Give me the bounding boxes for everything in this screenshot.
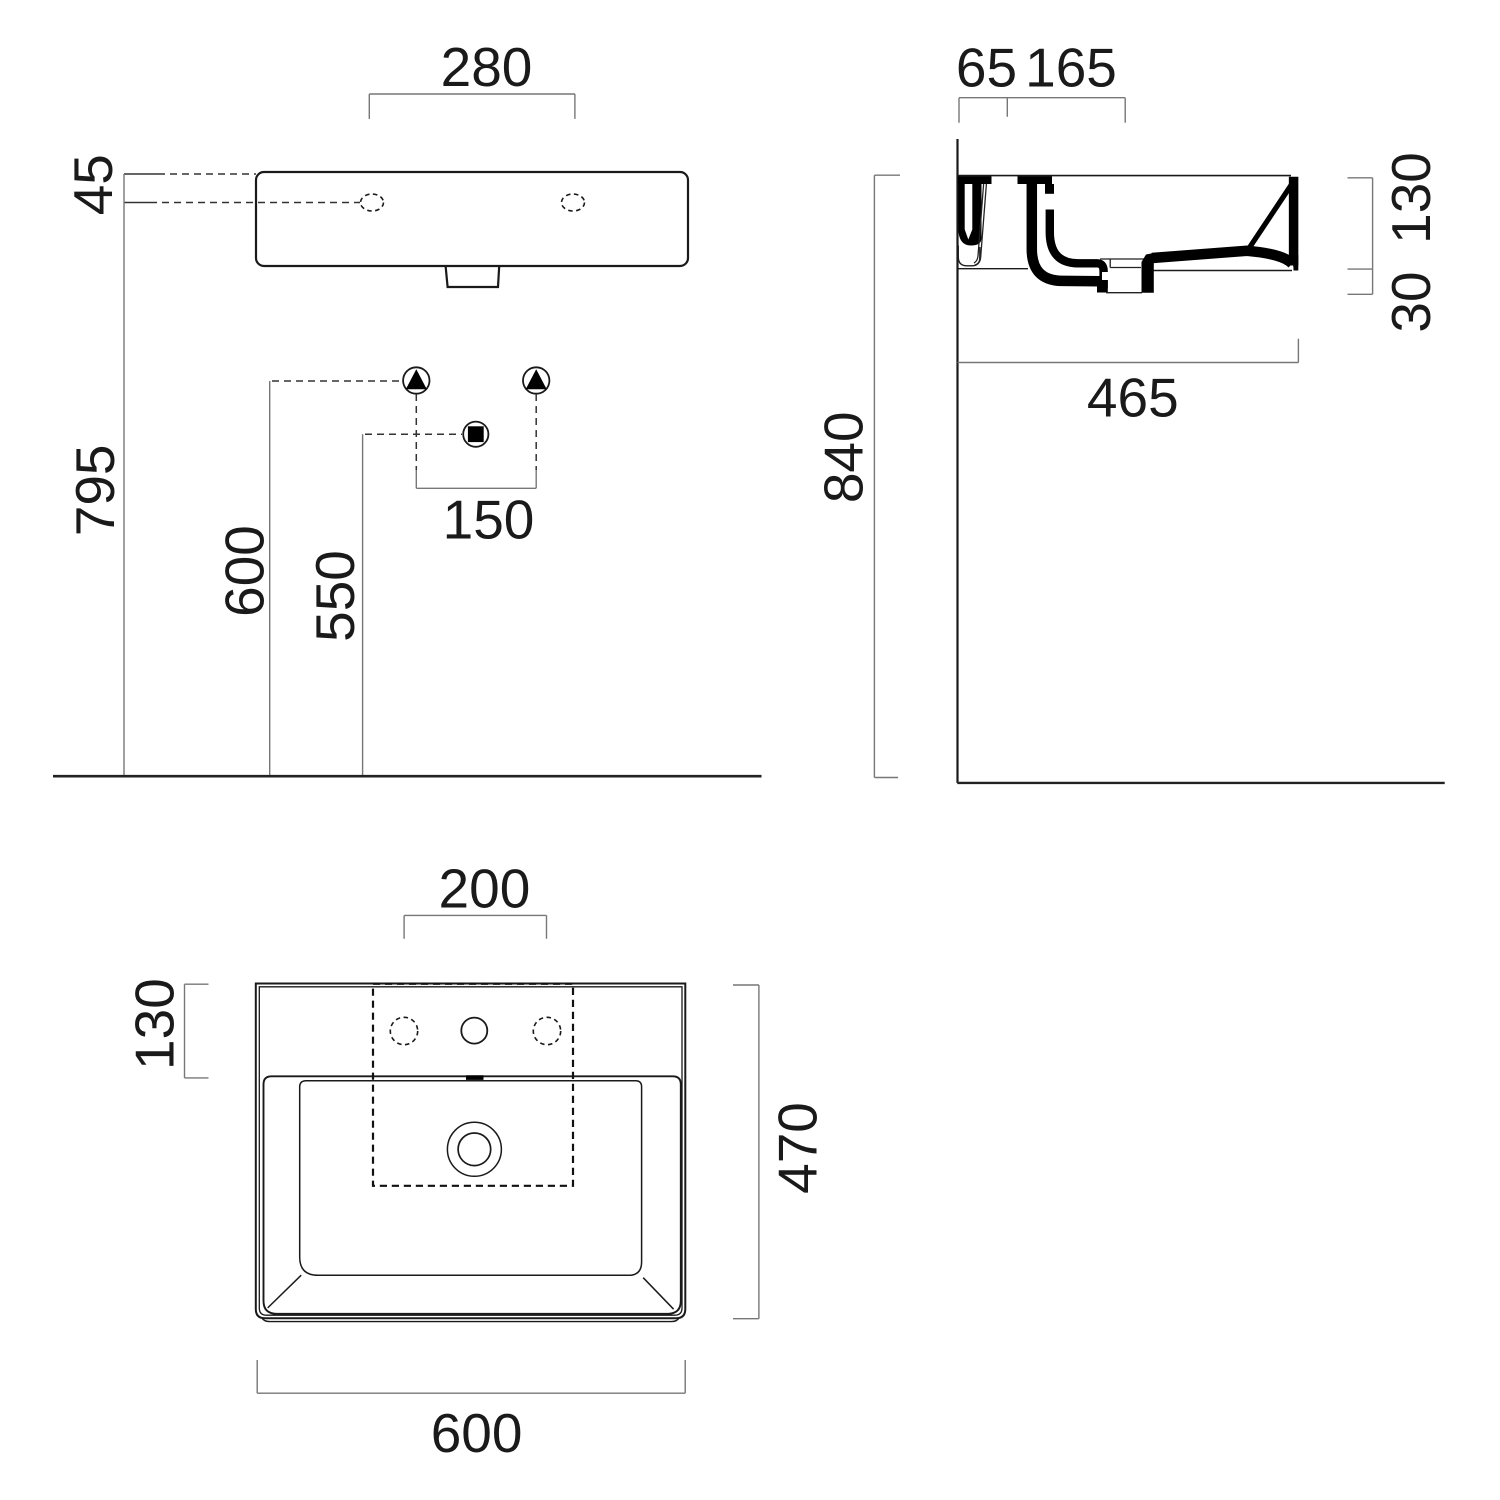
svg-text:600: 600 <box>431 1402 523 1464</box>
svg-text:795: 795 <box>64 445 126 537</box>
svg-text:600: 600 <box>214 525 276 617</box>
svg-text:465: 465 <box>1087 367 1179 429</box>
svg-text:45: 45 <box>62 154 124 215</box>
svg-text:470: 470 <box>767 1102 829 1194</box>
svg-text:150: 150 <box>443 489 535 551</box>
svg-text:550: 550 <box>304 550 366 642</box>
svg-text:165: 165 <box>1025 37 1117 99</box>
svg-text:840: 840 <box>813 411 875 503</box>
svg-text:130: 130 <box>124 978 186 1070</box>
svg-text:65: 65 <box>956 37 1017 99</box>
svg-text:280: 280 <box>441 36 533 98</box>
svg-text:200: 200 <box>439 857 531 919</box>
svg-text:130: 130 <box>1380 152 1442 244</box>
svg-text:30: 30 <box>1380 271 1442 332</box>
